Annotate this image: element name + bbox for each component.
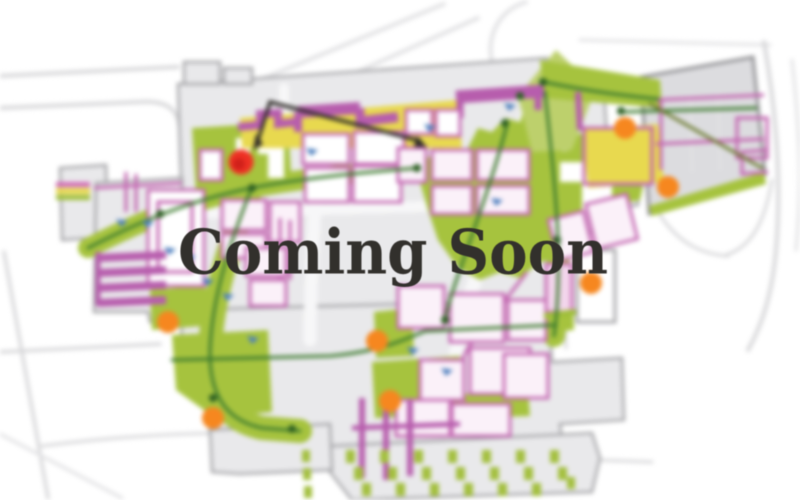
orange-dot-marker [379,390,401,412]
orange-dot-marker [157,311,179,333]
orange-dot-marker [657,176,679,198]
coming-soon-placeholder: Coming Soon [0,0,800,500]
red-dot-core [233,158,245,170]
coming-soon-title: Coming Soon [178,216,608,289]
red-marker [229,150,254,175]
orange-dot-marker [366,330,388,352]
orange-dot-marker [614,117,636,139]
orange-dot-marker [202,407,224,429]
